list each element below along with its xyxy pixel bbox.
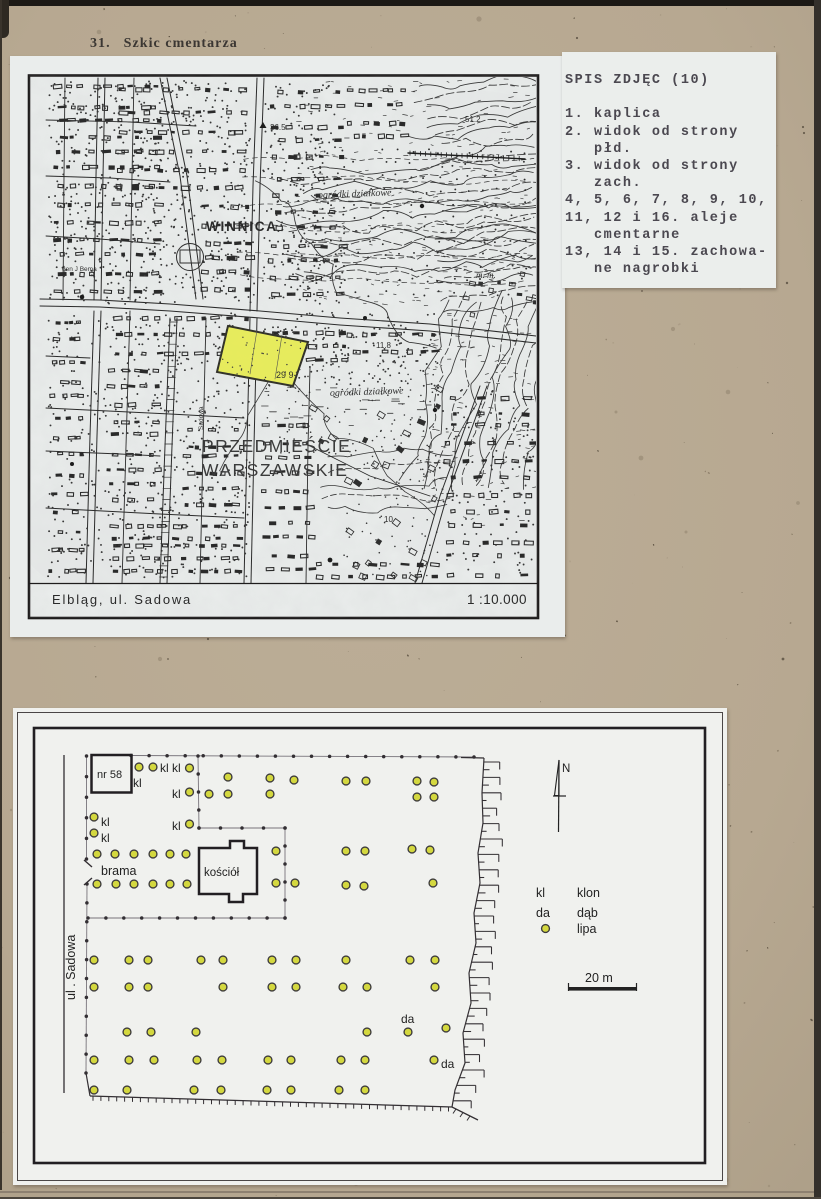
svg-text:Sadowa: Sadowa <box>198 406 205 430</box>
svg-text:kl: kl <box>172 787 181 801</box>
svg-text:klon: klon <box>577 886 600 900</box>
svg-text:PRZEDMIEŚCIE: PRZEDMIEŚCIE <box>202 435 351 456</box>
svg-text:1 :10.000: 1 :10.000 <box>467 592 527 607</box>
svg-text:ul . Sadowa: ul . Sadowa <box>64 935 78 1000</box>
svg-text:m. m.: m. m. <box>476 270 496 280</box>
svg-text:51.2: 51.2 <box>465 115 481 124</box>
svg-text:da: da <box>536 906 550 920</box>
svg-text:29 9: 29 9 <box>276 370 294 380</box>
svg-text:kl kl: kl kl <box>160 761 181 775</box>
svg-text:N: N <box>562 763 570 775</box>
svg-text:dąb: dąb <box>577 906 598 920</box>
svg-text:36.5: 36.5 <box>270 123 286 132</box>
svg-text:Elbląg, ul. Sadowa: Elbląg, ul. Sadowa <box>52 592 192 607</box>
svg-text:kościół: kościół <box>204 867 240 879</box>
svg-text:WARSZAWSKIE: WARSZAWSKIE <box>202 460 348 480</box>
svg-text:kl: kl <box>536 886 545 900</box>
svg-text:kl: kl <box>133 776 142 790</box>
svg-text:WINNICA: WINNICA <box>206 219 278 234</box>
svg-text:kl: kl <box>172 819 181 833</box>
svg-text:20 m: 20 m <box>585 971 613 985</box>
svg-text:kl: kl <box>101 831 110 845</box>
svg-text:da: da <box>401 1012 415 1026</box>
svg-text:brama: brama <box>101 864 136 878</box>
svg-text:11.8: 11.8 <box>376 341 392 350</box>
svg-text:10: 10 <box>384 515 393 524</box>
svg-text:nr 58: nr 58 <box>97 769 122 781</box>
svg-text:kl: kl <box>101 815 110 829</box>
svg-text:da: da <box>441 1057 455 1071</box>
svg-text:lipa: lipa <box>577 922 597 936</box>
svg-text:gen J Bema: gen J Bema <box>62 266 97 273</box>
